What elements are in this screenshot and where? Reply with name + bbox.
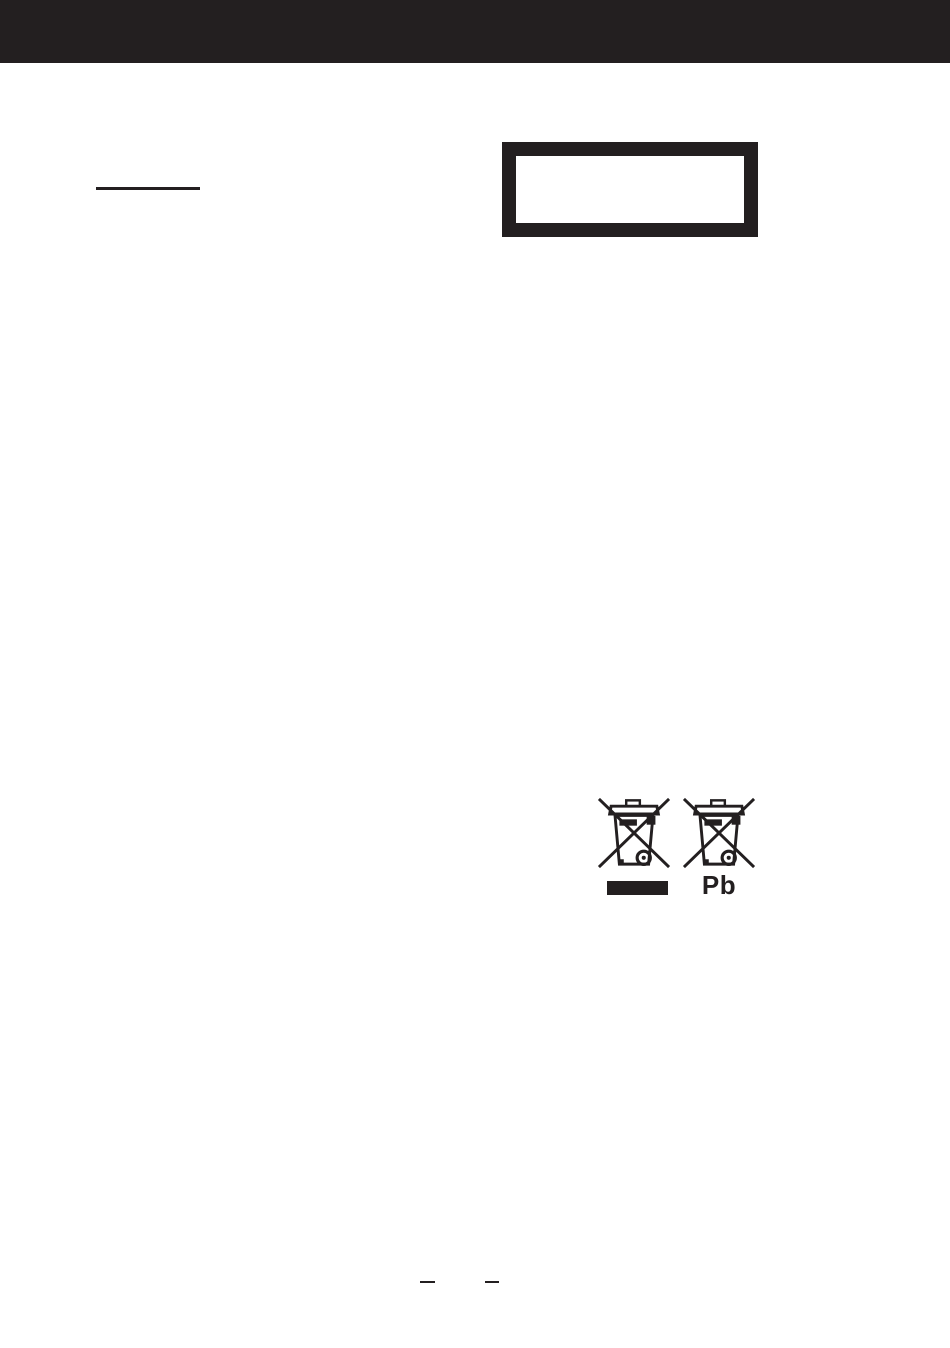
header-bar — [0, 0, 950, 63]
weee-crossed-bin-icon — [597, 792, 671, 872]
underline-rule — [96, 187, 200, 190]
weee-symbols: Pb — [590, 785, 770, 905]
weee-black-bar — [607, 881, 668, 895]
footer-dash-left — [420, 1281, 435, 1283]
pb-label: Pb — [682, 872, 756, 898]
weee-crossed-bin-pb-icon — [682, 792, 756, 872]
footer-dash-right — [485, 1281, 499, 1283]
document-page: Pb — [0, 0, 950, 1348]
notice-box — [502, 142, 758, 237]
